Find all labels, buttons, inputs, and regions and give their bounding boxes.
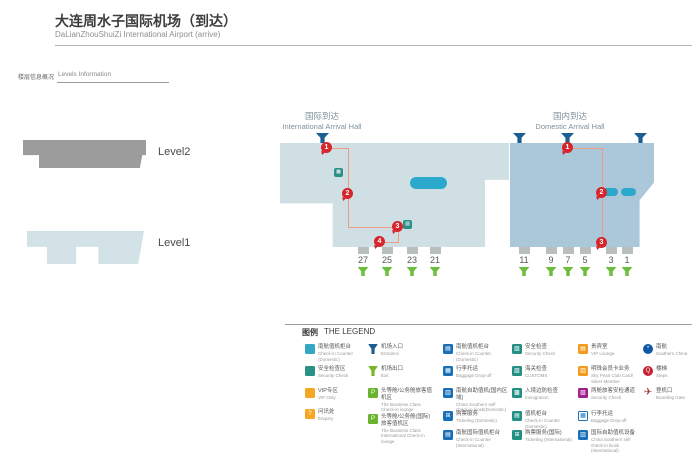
legend-item: ▨海关检查CUSTOMS: [512, 366, 578, 379]
exit-arrow-icon: [546, 267, 557, 276]
self-checkin-kiosk-domestic-icon: ▥: [443, 388, 453, 398]
legend-item: Q楼梯Steps: [643, 366, 695, 379]
enquiry-icon: ?: [305, 409, 315, 419]
route-marker-1-international: 1: [321, 142, 332, 153]
stairs-icon: Q: [643, 366, 653, 376]
exit-arrow-icon: [563, 267, 574, 276]
route-marker-2-international: 2: [342, 188, 353, 199]
route-marker-3-domestic: 3: [596, 237, 607, 248]
gate-block: [546, 247, 557, 254]
gate-21: 21: [424, 247, 446, 276]
legend-item: ▦行李托运Baggage Drop-off: [443, 366, 509, 379]
customs-legend-icon: ▨: [512, 366, 522, 376]
levels-info-label-zh: 楼层信息概况: [18, 72, 54, 81]
exit-arrow-icon: [606, 267, 617, 276]
china-southern-logo-icon: *: [643, 344, 653, 354]
legend-item: 机场出口Exit: [368, 366, 434, 379]
legend-item: *南航Southern China: [643, 344, 695, 357]
exit-arrow-icon: [622, 267, 633, 276]
self-checkin-kiosk-international-icon: ▥: [578, 430, 588, 440]
business-class-international-checkin-icon: P: [368, 414, 378, 424]
gate-5: 5: [574, 247, 596, 276]
levels-underline: [57, 82, 169, 83]
legend-item: ▥明珠会员卡业务Sky Pearl Club Card/ Silver Memb…: [578, 366, 644, 384]
page-subtitle: DaLianZhouShuiZi International Airport (…: [55, 30, 220, 39]
ticketing-domestic-icon: ⊞: [443, 411, 453, 421]
international-hall-label: 国际到达 International Arrival Hall: [267, 110, 377, 131]
gate-block: [519, 247, 530, 254]
exit-arrow-icon: [358, 267, 369, 276]
business-class-checkin-icon: P: [368, 388, 378, 398]
security-check-icon: ▧: [512, 344, 522, 354]
sky-pearl-club-icon: ▥: [578, 366, 588, 376]
baggage-belt: [410, 177, 447, 189]
level2-floor-shape: [23, 140, 146, 168]
legend-item: ▤南航值机柜台Check-in Counter (Domestic): [443, 344, 509, 362]
immigration-legend-icon: ▩: [512, 388, 522, 398]
exit-arrow-icon: [519, 267, 530, 276]
legend-title: 图例THE LEGEND: [302, 327, 375, 338]
legend-item: ▥南航自助值机(国内区域)China Southern self check-i…: [443, 388, 509, 413]
checkin-area-icon: [305, 344, 315, 354]
legend-item: P头等舱/公务舱旅客值机区The Business Class Check-in…: [368, 388, 434, 413]
level2-label: Level2: [158, 146, 190, 158]
vip-area-icon: [305, 388, 315, 398]
gate-1: 1: [616, 247, 638, 276]
immigration-icon: ▩: [334, 168, 343, 177]
gate-block: [430, 247, 441, 254]
legend-item: ▧安全检查Security Check: [512, 344, 578, 357]
level1-label: Level1: [158, 237, 190, 249]
baggage-dropoff-icon: ▦: [443, 366, 453, 376]
domestic-hall-label: 国内到达 Domestic Arrival Hall: [515, 110, 625, 131]
legend-divider: [285, 324, 692, 325]
legend-item: 机场入口Entrance: [368, 344, 434, 357]
gate-block: [563, 247, 574, 254]
legend-item: 安全检查区Security Check: [305, 366, 371, 379]
gate-block: [622, 247, 633, 254]
gate-block: [580, 247, 591, 254]
baggage-belt: [621, 188, 636, 196]
gate-block: [606, 247, 617, 254]
route-line: [348, 227, 398, 228]
route-marker-1-domestic: 1: [562, 142, 573, 153]
gate-block: [382, 247, 393, 254]
checkin-counter-domestic-icon: ▤: [443, 344, 453, 354]
legend-item: ▤贵宾室VIP Lounge: [578, 344, 644, 357]
legend-item: ▤南航国际值机柜台Check-in Counter (International…: [443, 430, 509, 448]
legend-item: ▤值机柜台Check-in Counter (Domestic): [512, 411, 578, 429]
international-hall-label-zh: 国际到达: [267, 110, 377, 122]
exit-arrow-icon: [430, 267, 441, 276]
gate-25: 25: [376, 247, 398, 276]
entrance-arrow-icon: [513, 133, 526, 143]
gate-27: 27: [352, 247, 374, 276]
legend-item: ▩入境边防检查Immigration: [512, 388, 578, 401]
route-line: [568, 148, 602, 149]
entrance-arrow-icon: [634, 133, 647, 143]
level1-floor-shape: [27, 231, 144, 264]
boarding-gate-icon: ✈: [643, 388, 653, 398]
legend-item: ▦行李托运Baggage Drop-off: [578, 411, 644, 424]
gate-block: [407, 247, 418, 254]
legend-item: ⊞购票服务Ticketing (Domestic): [443, 411, 509, 424]
gate-11: 11: [513, 247, 535, 276]
exit-arrow-icon: [382, 267, 393, 276]
page-title: 大连周水子国际机场（到达）: [55, 11, 237, 31]
premium-security-check-icon: ▧: [578, 388, 588, 398]
legend-item: ?问讯处Enquiry: [305, 409, 371, 422]
legend-item: VIP专区VIP Only: [305, 388, 371, 401]
route-marker-2-domestic: 2: [596, 187, 607, 198]
baggage-dropoff-outline-icon: ▦: [578, 411, 588, 421]
legend-item: ⊞购票服务(国际)Ticketing (International): [512, 430, 578, 443]
customs-icon: ▨: [403, 220, 412, 229]
gate-block: [358, 247, 369, 254]
entrance-icon: [368, 344, 378, 354]
legend-item: ✈登机口Boarding Gate: [643, 388, 695, 401]
header-divider: [55, 45, 692, 46]
levels-info-label-en: Levels Information: [58, 71, 111, 78]
domestic-hall-label-en: Domestic Arrival Hall: [515, 122, 625, 131]
exit-arrow-icon: [580, 267, 591, 276]
legend-item: 南航值机柜台Check-in Counter (Domestic): [305, 344, 371, 362]
ticketing-international-icon: ⊞: [512, 430, 522, 440]
gate-23: 23: [401, 247, 423, 276]
checkin-counter-international-icon: ▤: [443, 430, 453, 440]
route-marker-4-international: 4: [374, 236, 385, 247]
legend-item: P头等舱/公务舱(国际)旅客值机区The Business Class Inte…: [368, 414, 434, 445]
route-marker-3-international: 3: [392, 221, 403, 232]
domestic-hall-label-zh: 国内到达: [515, 110, 625, 122]
exit-icon: [368, 366, 378, 376]
security-area-icon: [305, 366, 315, 376]
exit-arrow-icon: [407, 267, 418, 276]
checkin-counter-icon: ▤: [512, 411, 522, 421]
international-hall-label-en: International Arrival Hall: [267, 122, 377, 131]
legend-item: ▧两舱旅客安检通道Security Check: [578, 388, 644, 401]
vip-lounge-icon: ▤: [578, 344, 588, 354]
